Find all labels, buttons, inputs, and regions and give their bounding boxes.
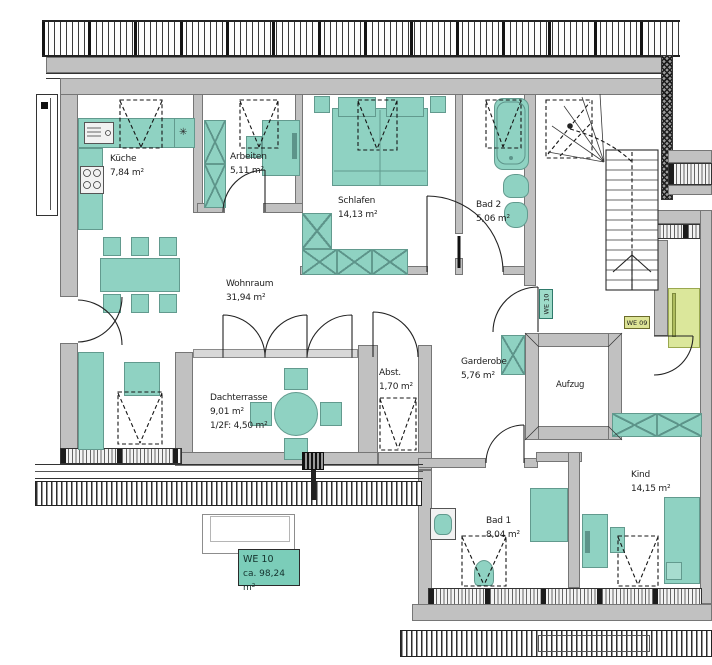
we10-door-tag-text: WE 10 [542, 294, 550, 315]
room-name: Abst. [379, 366, 413, 380]
room-label-garderobe: Garderobe 5,76 m² [461, 355, 507, 383]
room-area: 7,84 m² [110, 166, 144, 180]
room-area: 14,13 m² [338, 208, 377, 222]
room-name: Wohnraum [226, 277, 273, 291]
room-area: 5,06 m² [476, 212, 510, 226]
dormer-dashed-outlines [118, 100, 658, 586]
door-arcs [78, 170, 693, 463]
fixture-details [84, 102, 591, 553]
room-area: 8,04 m² [486, 528, 520, 542]
room-name: Kind [631, 468, 670, 482]
floor-plan: ✳ [0, 0, 712, 665]
room-name: Arbeiten [230, 150, 267, 164]
room-label-kueche: Küche 7,84 m² [110, 152, 144, 180]
room-area-half: 1/2F: 4,50 m² [210, 419, 268, 433]
room-name: Bad 1 [486, 514, 520, 528]
room-name: Dachterrasse [210, 391, 268, 405]
we09-tag-text: WE 09 [627, 319, 648, 327]
radiator-icon: ✳ [179, 127, 187, 138]
room-area: 5,76 m² [461, 369, 507, 383]
room-area: 5,11 m² [230, 164, 267, 178]
room-name: Schlafen [338, 194, 377, 208]
room-label-kind: Kind 14,15 m² [631, 468, 670, 496]
room-label-abst: Abst. 1,70 m² [379, 366, 413, 394]
plan-linework [0, 0, 712, 665]
room-label-arbeiten: Arbeiten 5,11 m² [230, 150, 267, 178]
room-area: 31,94 m² [226, 291, 273, 305]
room-area: 1,70 m² [379, 380, 413, 394]
room-label-schlafen: Schlafen 14,13 m² [338, 194, 377, 222]
room-name: Garderobe [461, 355, 507, 369]
unit-area: ca. 98,24 m² [243, 567, 299, 595]
room-name: Küche [110, 152, 144, 166]
room-label-bad2: Bad 2 5,06 m² [476, 198, 510, 226]
room-label-dachterrasse: Dachterrasse 9,01 m² 1/2F: 4,50 m² [210, 391, 268, 433]
room-name: Aufzug [556, 378, 584, 392]
staircase [548, 94, 658, 290]
unit-summary-box: WE 10 ca. 98,24 m² [238, 549, 300, 586]
we09-tag: WE 09 [624, 316, 650, 329]
room-area: 14,15 m² [631, 482, 670, 496]
room-name: Bad 2 [476, 198, 510, 212]
room-label-aufzug: Aufzug [556, 378, 584, 392]
unit-id: WE 10 [243, 553, 299, 567]
room-label-bad1: Bad 1 8,04 m² [486, 514, 520, 542]
we10-door-tag: WE 10 [539, 289, 553, 319]
room-label-wohnraum: Wohnraum 31,94 m² [226, 277, 273, 305]
room-area: 9,01 m² [210, 405, 268, 419]
